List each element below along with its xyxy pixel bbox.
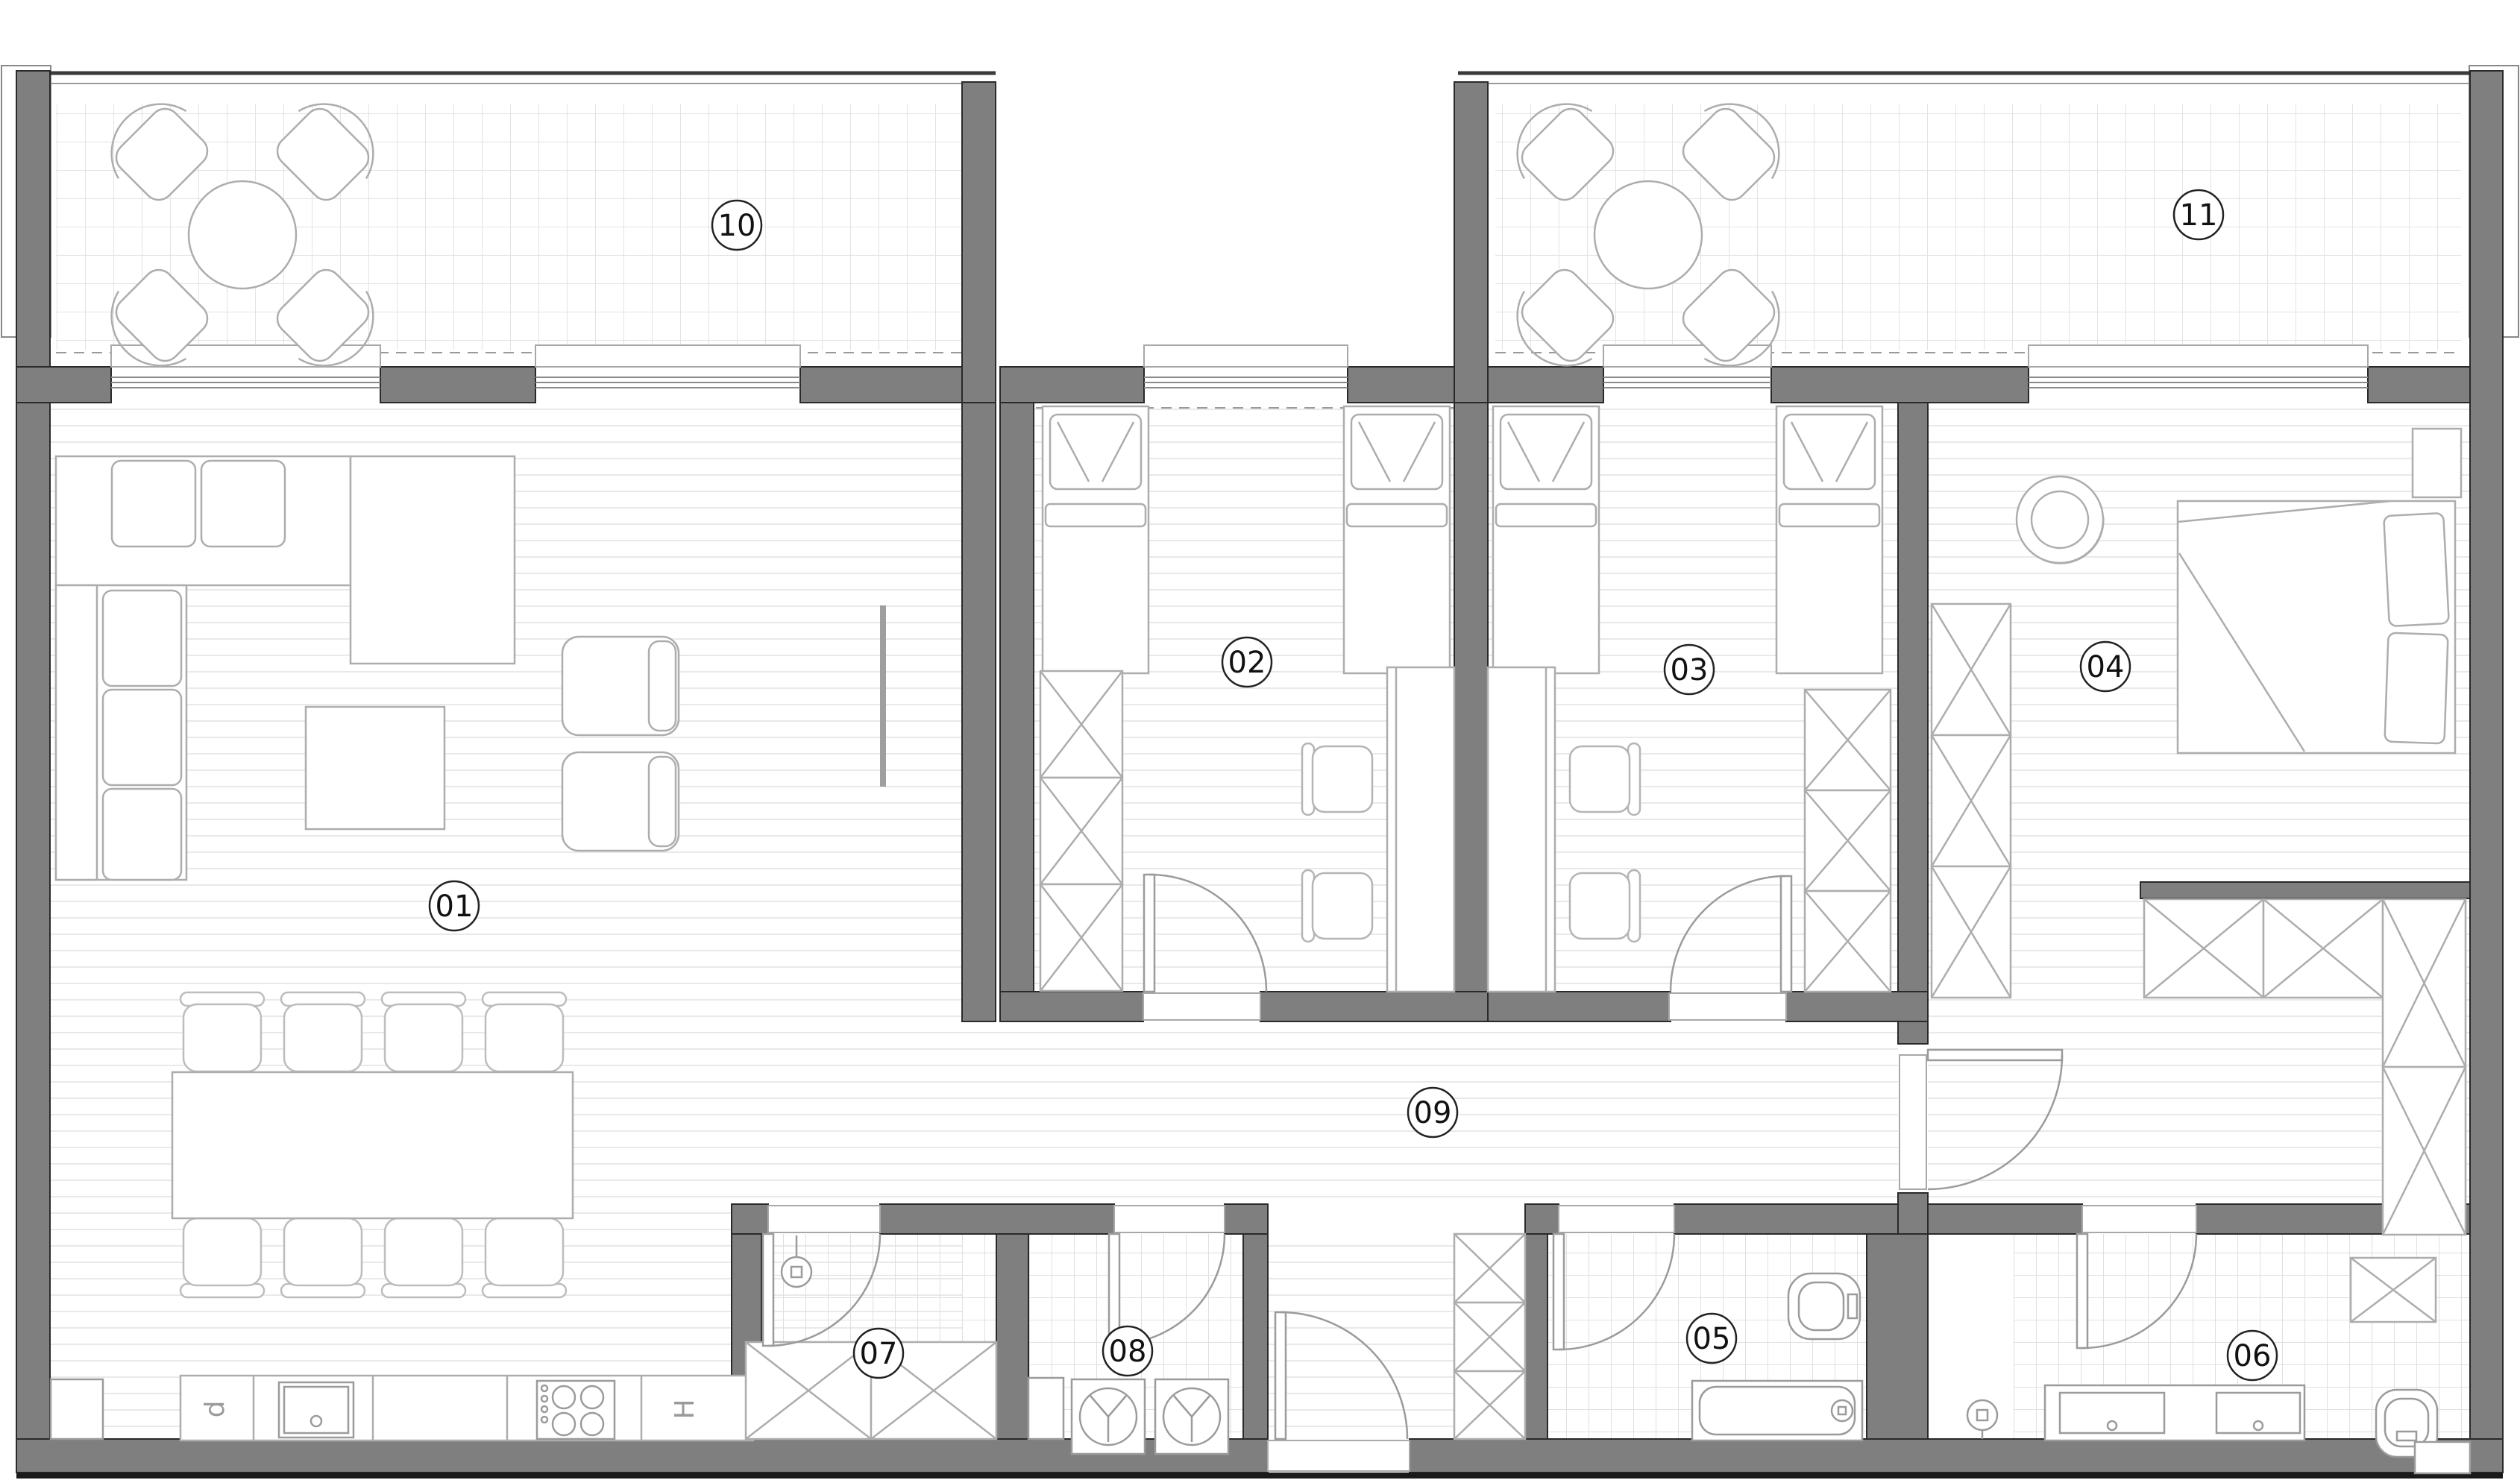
dining-table	[172, 1072, 573, 1218]
wardrobe-x	[2144, 899, 2383, 998]
room-label-09: 09	[1408, 1088, 1457, 1137]
room-label-03: 03	[1665, 645, 1714, 694]
sofa-daybed-module	[351, 456, 515, 664]
room-label-10: 10	[712, 201, 761, 250]
svg-text:10: 10	[718, 209, 756, 243]
washing-machine-icon	[1072, 1379, 1145, 1454]
entry-hall-floor	[1268, 1234, 1454, 1439]
armchair-2	[562, 752, 679, 851]
terrace-11-round-table	[1594, 181, 1702, 289]
wall-exterior-right	[2470, 71, 2503, 1473]
duct-shaft	[2415, 1442, 2470, 1473]
wall-living-bedroom02	[962, 403, 996, 1021]
wall-bath-top-2	[880, 1204, 1114, 1234]
bed-single	[1043, 406, 1149, 673]
wall-bath-top-3	[1225, 1204, 1268, 1234]
svg-text:07: 07	[860, 1337, 898, 1371]
wardrobe-x	[1805, 690, 1891, 992]
svg-text:08: 08	[1109, 1335, 1147, 1369]
bed-single	[1344, 406, 1450, 673]
room-label-04: 04	[2081, 642, 2130, 691]
wall-bottom-edge	[16, 1473, 2503, 1479]
svg-text:02: 02	[1228, 646, 1266, 680]
wall-band-7	[1771, 367, 2029, 403]
wall-bath-top-4	[1525, 1204, 1559, 1234]
window-bedroom02	[1144, 345, 1348, 388]
wall-bedroom02-03	[1454, 403, 1488, 1021]
window-bedroom04	[2029, 345, 2368, 388]
wall-bath-top-1	[732, 1204, 768, 1234]
hall-wardrobe-x	[1454, 1234, 1525, 1439]
svg-text:09: 09	[1414, 1096, 1452, 1130]
wall-band-4	[1000, 367, 1144, 403]
kitchen-dishwasher-letter: d	[200, 1401, 230, 1418]
wall-bath05-left	[1525, 1234, 1547, 1439]
desk	[1488, 667, 1555, 992]
wall-corridor-top-1	[1000, 992, 1143, 1021]
wall-band-1	[16, 367, 111, 403]
tv-panel	[880, 605, 886, 787]
bed-single	[1776, 406, 1882, 673]
room-label-05: 05	[1687, 1314, 1736, 1363]
desk-chair-icon	[1302, 870, 1372, 942]
desk	[1387, 667, 1454, 992]
terrace-10-round-table	[189, 181, 296, 289]
shower-head-icon	[1967, 1400, 1997, 1439]
svg-text:11: 11	[2180, 198, 2218, 233]
room-label-01: 01	[430, 881, 479, 930]
wall-bedroom02-left	[1000, 403, 1034, 1021]
room-label-08: 08	[1103, 1326, 1152, 1376]
floorplan-drawing: d H	[0, 0, 2520, 1480]
wall-notch-left-upper	[962, 82, 996, 403]
wall-exterior-left	[16, 71, 50, 1473]
armchair-1	[562, 637, 679, 735]
nightstand	[2413, 429, 2461, 497]
window-living-2	[535, 345, 800, 388]
kitchen-sink-icon	[279, 1382, 354, 1438]
room-label-11: 11	[2174, 190, 2223, 239]
wall-bedroom04-stub	[2140, 882, 2470, 898]
kitchen-hood-letter: H	[670, 1399, 700, 1419]
window-bedroom03	[1603, 345, 1771, 388]
wall-bath05-right	[1867, 1234, 1928, 1439]
svg-text:01: 01	[436, 889, 474, 924]
wall-bath08-right	[1243, 1234, 1268, 1439]
svg-text:03: 03	[1671, 653, 1709, 687]
wall-bath-top-6	[1928, 1204, 2082, 1234]
wall-bath07-08	[996, 1234, 1028, 1439]
desk-chair-icon	[1570, 870, 1640, 942]
cooktop-icon	[537, 1381, 615, 1439]
dryer-icon	[1155, 1379, 1228, 1454]
svg-text:05: 05	[1693, 1322, 1731, 1356]
wardrobe-x	[2383, 899, 2466, 1235]
svg-text:06: 06	[2234, 1339, 2272, 1373]
wardrobe-x	[2351, 1258, 2436, 1322]
double-vanity	[2045, 1385, 2304, 1440]
wardrobe-x	[1932, 604, 2011, 998]
toilet-icon	[1788, 1273, 1860, 1339]
wall-corridor-top-2	[1260, 992, 1488, 1021]
wall-band-2	[380, 367, 535, 403]
room-label-06: 06	[2228, 1331, 2277, 1380]
desk-chair-icon	[1302, 743, 1372, 815]
kitchen-shaft	[51, 1379, 103, 1439]
wall-bath-top-5	[1674, 1204, 1898, 1234]
room-label-02: 02	[1222, 637, 1272, 687]
wall-band-6	[1488, 367, 1603, 403]
wardrobe-x	[1040, 671, 1122, 991]
svg-text:04: 04	[2087, 650, 2125, 684]
desk-chair-icon	[1570, 743, 1640, 815]
coffee-table	[306, 707, 444, 829]
duct-shaft	[1028, 1378, 1063, 1439]
wall-terrace11-left	[1454, 82, 1488, 403]
kitchen-counter	[180, 1376, 753, 1440]
wall-bedroom03-04-upper	[1898, 403, 1928, 1044]
bed-single	[1493, 406, 1599, 673]
floorplan-page: d H	[0, 0, 2520, 1480]
double-bed	[2178, 501, 2455, 753]
bathtub	[1692, 1381, 1862, 1440]
wall-exterior-bottom-right	[1410, 1439, 2503, 1473]
wall-band-8	[2368, 367, 2470, 403]
room-label-07: 07	[854, 1329, 903, 1378]
wall-corridor-top-3	[1488, 992, 1671, 1021]
wall-corridor-top-4	[1786, 992, 1928, 1021]
